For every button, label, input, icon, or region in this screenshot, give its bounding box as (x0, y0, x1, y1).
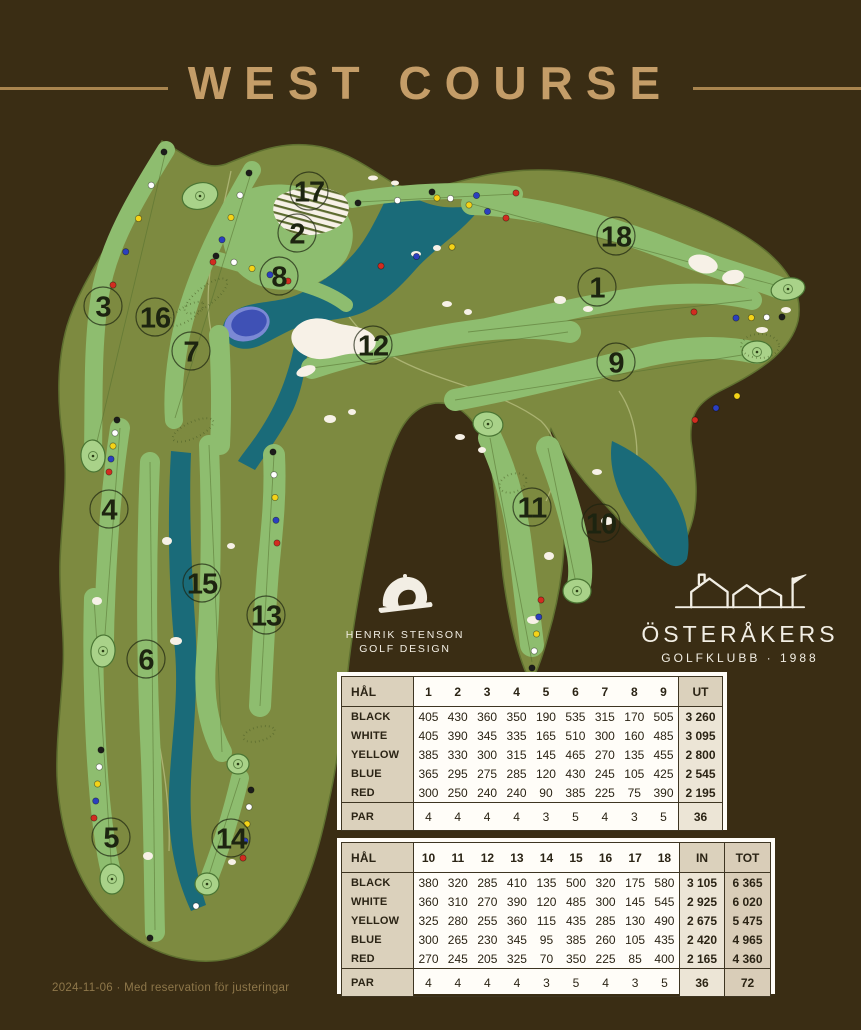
tee-dot-red (210, 259, 216, 265)
distance-cell: 120 (532, 892, 562, 911)
hole-number: 18 (601, 221, 632, 253)
hole-number: 8 (271, 261, 287, 293)
tee-label: YELLOW (342, 911, 414, 930)
tee-row: BLACK4054303603501905353151705053 260 (342, 707, 723, 727)
hole-number: 17 (294, 176, 324, 208)
tee-dot-white (231, 259, 237, 265)
hole-number-header: 2 (443, 677, 472, 707)
tee-row: BLUE300265230345953852601054352 4204 965 (342, 930, 771, 949)
hole-number-header: 11 (443, 843, 473, 873)
tee-dot-yellow (228, 214, 234, 220)
distance-cell: 315 (502, 745, 531, 764)
distance-cell: 265 (443, 930, 473, 949)
tee-dot-black (213, 253, 219, 259)
tee-dot-blue (413, 253, 419, 259)
tee-row: BLACK3803202854101355003201755803 1056 3… (342, 873, 771, 893)
par-row: PAR4444354353672 (342, 969, 771, 997)
back-nine-table: HÅL101112131415161718INTOTBLACK380320285… (341, 842, 771, 997)
pin-dot (487, 423, 490, 426)
distance-cell: 170 (620, 707, 649, 727)
par-cell: 5 (561, 803, 590, 831)
par-sum-cell: 36 (679, 803, 723, 831)
distance-cell: 160 (620, 726, 649, 745)
pin-dot (237, 763, 240, 766)
hole-number-header: 4 (502, 677, 531, 707)
pin-dot (111, 878, 114, 881)
distance-cell: 455 (649, 745, 679, 764)
hole-marker: 15 (183, 564, 221, 602)
distance-cell: 405 (414, 707, 443, 727)
distance-cell: 95 (532, 930, 562, 949)
tee-dot-blue (733, 315, 739, 321)
hole-number: 3 (95, 291, 111, 323)
tee-row: YELLOW3252802553601154352851304902 6755 … (342, 911, 771, 930)
tee-dot-black (161, 149, 167, 155)
tee-dot-black (114, 417, 120, 423)
tee-dot-white (271, 472, 277, 478)
par-cell: 4 (414, 803, 443, 831)
par-cell: 5 (650, 969, 680, 997)
hole-number-header: 17 (620, 843, 650, 873)
total-cell: 5 475 (725, 911, 771, 930)
distance-cell: 250 (443, 783, 472, 803)
sum-cell: 2 800 (679, 745, 723, 764)
par-cell: 4 (590, 803, 619, 831)
hole-number-header: 6 (561, 677, 590, 707)
distance-cell: 165 (531, 726, 560, 745)
club-founded: GOLFKLUBB · 1988 (630, 651, 850, 665)
distance-cell: 240 (502, 783, 531, 803)
distance-cell: 75 (620, 783, 649, 803)
hole-number: 4 (101, 494, 117, 526)
tee-dot-white (96, 764, 102, 770)
tee-dot-yellow (94, 781, 100, 787)
tee-row: RED27024520532570350225854002 1654 360 (342, 949, 771, 969)
distance-cell: 85 (620, 949, 650, 969)
distance-cell: 300 (414, 930, 444, 949)
sum-column-header: UT (679, 677, 723, 707)
tee-dot-blue (536, 614, 542, 620)
tee-dot-red (692, 417, 698, 423)
par-sum-cell: 36 (680, 969, 725, 997)
par-cell: 4 (472, 803, 501, 831)
tee-dot-yellow (748, 315, 754, 321)
hole-number-header: 14 (532, 843, 562, 873)
distance-cell: 280 (443, 911, 473, 930)
distance-cell: 270 (414, 949, 444, 969)
tee-dot-blue (219, 237, 225, 243)
tee-dot-black (270, 449, 276, 455)
tee-dot-blue (713, 405, 719, 411)
tee-dot-black (355, 200, 361, 206)
pin-dot (199, 195, 202, 198)
tee-dot-black (529, 665, 535, 671)
hole-number: 13 (251, 600, 282, 632)
tee-label: BLACK (342, 707, 414, 727)
distance-cell: 225 (591, 949, 621, 969)
distance-cell: 425 (649, 764, 679, 783)
distance-cell: 385 (561, 930, 591, 949)
total-cell: 4 965 (725, 930, 771, 949)
distance-cell: 410 (502, 873, 532, 893)
designer-name: HENRIK STENSON (338, 629, 472, 643)
par-cell: 4 (591, 969, 621, 997)
front-nine-table: HÅL123456789UTBLACK405430360350190535315… (341, 676, 723, 831)
tee-dot-yellow (533, 631, 539, 637)
distance-cell: 385 (414, 745, 443, 764)
hole-number: 10 (586, 508, 616, 540)
hole-number: 2 (289, 218, 304, 250)
hole-number-header: 5 (531, 677, 560, 707)
tee-dot-red (106, 469, 112, 475)
tee-dot-black (98, 747, 104, 753)
tee-dot-red (538, 597, 544, 603)
hole-number-header: 13 (502, 843, 532, 873)
hole-number-header: 18 (650, 843, 680, 873)
pin-dot (102, 650, 105, 653)
hole-number-header: 8 (620, 677, 649, 707)
hole-number: 12 (358, 330, 388, 362)
distance-cell: 360 (472, 707, 501, 727)
tee-row: WHITE3603102703901204853001455452 9256 0… (342, 892, 771, 911)
hole-number: 14 (216, 823, 247, 855)
total-column-header: TOT (725, 843, 771, 873)
distance-cell: 310 (443, 892, 473, 911)
distance-cell: 435 (561, 911, 591, 930)
pin-dot (92, 455, 95, 458)
hole-number: 1 (589, 272, 605, 304)
distance-cell: 105 (620, 930, 650, 949)
distance-cell: 390 (443, 726, 472, 745)
tee-dot-white (447, 195, 453, 201)
header-row: HÅL101112131415161718INTOT (342, 843, 771, 873)
distance-cell: 335 (502, 726, 531, 745)
par-cell: 4 (502, 803, 531, 831)
par-row: PAR44443543536 (342, 803, 723, 831)
distance-cell: 135 (620, 745, 649, 764)
tee-dot-white (148, 182, 154, 188)
hole-marker: 11 (513, 488, 551, 526)
tee-dot-black (248, 787, 254, 793)
scorecard-front-nine: HÅL123456789UTBLACK405430360350190535315… (337, 672, 727, 830)
tee-dot-white (246, 804, 252, 810)
tee-dot-white (112, 430, 118, 436)
hole-number: 15 (187, 568, 218, 600)
tee-dot-yellow (434, 195, 440, 201)
sum-cell: 3 260 (679, 707, 723, 727)
header-row: HÅL123456789UT (342, 677, 723, 707)
hole-number-header: 3 (472, 677, 501, 707)
tee-label: RED (342, 783, 414, 803)
hole-number-header: 10 (414, 843, 444, 873)
distance-cell: 350 (502, 707, 531, 727)
tee-dot-white (237, 192, 243, 198)
distance-cell: 130 (620, 911, 650, 930)
pin-dot (756, 351, 759, 354)
par-label: PAR (342, 803, 414, 831)
tee-dot-blue (484, 208, 490, 214)
hole-number: 16 (140, 302, 171, 334)
distance-cell: 245 (590, 764, 619, 783)
tee-dot-white (764, 314, 770, 320)
distance-cell: 405 (414, 726, 443, 745)
sum-cell: 2 195 (679, 783, 723, 803)
distance-cell: 360 (414, 892, 444, 911)
hole-number: 11 (518, 492, 548, 524)
par-cell: 3 (620, 803, 649, 831)
tee-dot-blue (93, 798, 99, 804)
sum-cell: 2 165 (680, 949, 725, 969)
distance-cell: 145 (531, 745, 560, 764)
distance-cell: 285 (502, 764, 531, 783)
hole-marker: 18 (597, 217, 635, 255)
distance-cell: 90 (531, 783, 560, 803)
clubhouse-icon (665, 568, 815, 612)
tee-dot-red (110, 282, 116, 288)
par-cell: 3 (620, 969, 650, 997)
pin-dot (576, 590, 579, 593)
distance-cell: 345 (472, 726, 501, 745)
tee-dot-red (240, 855, 246, 861)
distance-cell: 315 (590, 707, 619, 727)
tee-dot-black (779, 314, 785, 320)
hole-column-header: HÅL (342, 843, 414, 873)
distance-cell: 105 (620, 764, 649, 783)
total-cell: 6 020 (725, 892, 771, 911)
tee-dot-black (147, 935, 153, 941)
tee-dot-yellow (135, 215, 141, 221)
distance-cell: 350 (561, 949, 591, 969)
tee-row: WHITE4053903453351655103001604853 095 (342, 726, 723, 745)
distance-cell: 260 (591, 930, 621, 949)
distance-cell: 255 (473, 911, 503, 930)
distance-cell: 385 (561, 783, 590, 803)
hole-marker: 12 (354, 326, 392, 364)
distance-cell: 300 (591, 892, 621, 911)
tee-label: RED (342, 949, 414, 969)
par-cell: 3 (531, 803, 560, 831)
distance-cell: 380 (414, 873, 444, 893)
distance-cell: 175 (620, 873, 650, 893)
tee-row: BLUE3652952752851204302451054252 545 (342, 764, 723, 783)
distance-cell: 120 (531, 764, 560, 783)
hole-number-header: 15 (561, 843, 591, 873)
hole-marker: 10 (582, 504, 620, 542)
distance-cell: 390 (502, 892, 532, 911)
distance-cell: 225 (590, 783, 619, 803)
tee-dot-yellow (734, 393, 740, 399)
distance-cell: 580 (650, 873, 680, 893)
hole-marker: 17 (290, 172, 328, 210)
par-label: PAR (342, 969, 414, 997)
tee-dot-red (91, 815, 97, 821)
distance-cell: 300 (414, 783, 443, 803)
distance-cell: 190 (531, 707, 560, 727)
tee-dot-yellow (110, 443, 116, 449)
club-logo: ÖSTERÅKERS GOLFKLUBB · 1988 (630, 568, 850, 665)
distance-cell: 500 (561, 873, 591, 893)
tee-dot-yellow (272, 494, 278, 500)
distance-cell: 325 (502, 949, 532, 969)
designer-logo: HENRIK STENSON GOLF DESIGN (338, 572, 472, 656)
pin-dot (206, 883, 209, 886)
tee-label: YELLOW (342, 745, 414, 764)
distance-cell: 300 (472, 745, 501, 764)
tee-dot-yellow (449, 244, 455, 250)
hole-number-header: 16 (591, 843, 621, 873)
tee-dot-blue (273, 517, 279, 523)
total-cell: 4 360 (725, 949, 771, 969)
hole-marker: 14 (212, 819, 250, 857)
hole-marker: 13 (247, 596, 285, 634)
distance-cell: 240 (472, 783, 501, 803)
tee-label: BLUE (342, 930, 414, 949)
par-cell: 4 (443, 969, 473, 997)
tee-dot-white (193, 903, 199, 909)
sum-cell: 2 545 (679, 764, 723, 783)
tee-dot-red (691, 309, 697, 315)
distance-cell: 300 (590, 726, 619, 745)
distance-cell: 330 (443, 745, 472, 764)
designer-sub: GOLF DESIGN (338, 643, 472, 657)
distance-cell: 400 (650, 949, 680, 969)
sum-cell: 2 675 (680, 911, 725, 930)
sum-cell: 3 095 (679, 726, 723, 745)
distance-cell: 510 (561, 726, 590, 745)
distance-cell: 320 (591, 873, 621, 893)
tee-dot-yellow (466, 202, 472, 208)
distance-cell: 145 (620, 892, 650, 911)
distance-cell: 285 (591, 911, 621, 930)
distance-cell: 435 (650, 930, 680, 949)
club-name: ÖSTERÅKERS (630, 621, 850, 648)
distance-cell: 70 (532, 949, 562, 969)
par-cell: 4 (443, 803, 472, 831)
tee-dot-red (274, 540, 280, 546)
distance-cell: 285 (473, 873, 503, 893)
distance-cell: 430 (443, 707, 472, 727)
distance-cell: 270 (590, 745, 619, 764)
distance-cell: 485 (649, 726, 679, 745)
par-total-cell: 72 (725, 969, 771, 997)
page-title: WEST COURSE (0, 60, 861, 106)
par-cell: 4 (502, 969, 532, 997)
par-cell: 5 (561, 969, 591, 997)
par-cell: 4 (473, 969, 503, 997)
hole-marker: 16 (136, 298, 174, 336)
distance-cell: 115 (532, 911, 562, 930)
distance-cell: 430 (561, 764, 590, 783)
tee-label: BLUE (342, 764, 414, 783)
tee-dot-white (394, 197, 400, 203)
distance-cell: 345 (502, 930, 532, 949)
hole-number-header: 12 (473, 843, 503, 873)
distance-cell: 545 (650, 892, 680, 911)
par-cell: 4 (414, 969, 444, 997)
revision-note: 2024-11-06 · Med reservation för justeri… (52, 982, 289, 994)
tee-label: WHITE (342, 892, 414, 911)
distance-cell: 295 (443, 764, 472, 783)
distance-cell: 325 (414, 911, 444, 930)
distance-cell: 135 (532, 873, 562, 893)
hole-number: 9 (608, 347, 624, 379)
sum-column-header: IN (680, 843, 725, 873)
par-cell: 3 (532, 969, 562, 997)
tee-dot-black (246, 170, 252, 176)
distance-cell: 505 (649, 707, 679, 727)
distance-cell: 320 (443, 873, 473, 893)
distance-cell: 390 (649, 783, 679, 803)
distance-cell: 365 (414, 764, 443, 783)
tee-dot-red (378, 263, 384, 269)
tee-label: WHITE (342, 726, 414, 745)
tee-row: YELLOW3853303003151454652701354552 800 (342, 745, 723, 764)
distance-cell: 275 (472, 764, 501, 783)
distance-cell: 490 (650, 911, 680, 930)
tee-dot-red (503, 215, 509, 221)
tee-dot-blue (123, 249, 129, 255)
par-cell: 5 (649, 803, 679, 831)
hole-number: 7 (183, 336, 198, 368)
tee-row: RED30025024024090385225753902 195 (342, 783, 723, 803)
distance-cell: 270 (473, 892, 503, 911)
sum-cell: 2 925 (680, 892, 725, 911)
tee-dot-blue (473, 192, 479, 198)
scorecard-back-nine: HÅL101112131415161718INTOTBLACK380320285… (337, 838, 775, 994)
distance-cell: 205 (473, 949, 503, 969)
tee-dot-black (429, 189, 435, 195)
tee-dot-yellow (249, 265, 255, 271)
hole-number-header: 7 (590, 677, 619, 707)
total-cell: 6 365 (725, 873, 771, 893)
tee-dot-blue (108, 456, 114, 462)
hole-column-header: HÅL (342, 677, 414, 707)
tee-dot-white (531, 648, 537, 654)
golf-cap-icon (373, 572, 437, 624)
distance-cell: 465 (561, 745, 590, 764)
hole-number-header: 1 (414, 677, 443, 707)
tee-label: BLACK (342, 873, 414, 893)
sum-cell: 2 420 (680, 930, 725, 949)
distance-cell: 360 (502, 911, 532, 930)
tee-dot-red (513, 190, 519, 196)
pin-dot (787, 288, 790, 291)
hole-number-header: 9 (649, 677, 679, 707)
distance-cell: 245 (443, 949, 473, 969)
distance-cell: 230 (473, 930, 503, 949)
hole-number: 5 (103, 822, 119, 854)
hole-number: 6 (138, 644, 154, 676)
distance-cell: 535 (561, 707, 590, 727)
sum-cell: 3 105 (680, 873, 725, 893)
distance-cell: 485 (561, 892, 591, 911)
